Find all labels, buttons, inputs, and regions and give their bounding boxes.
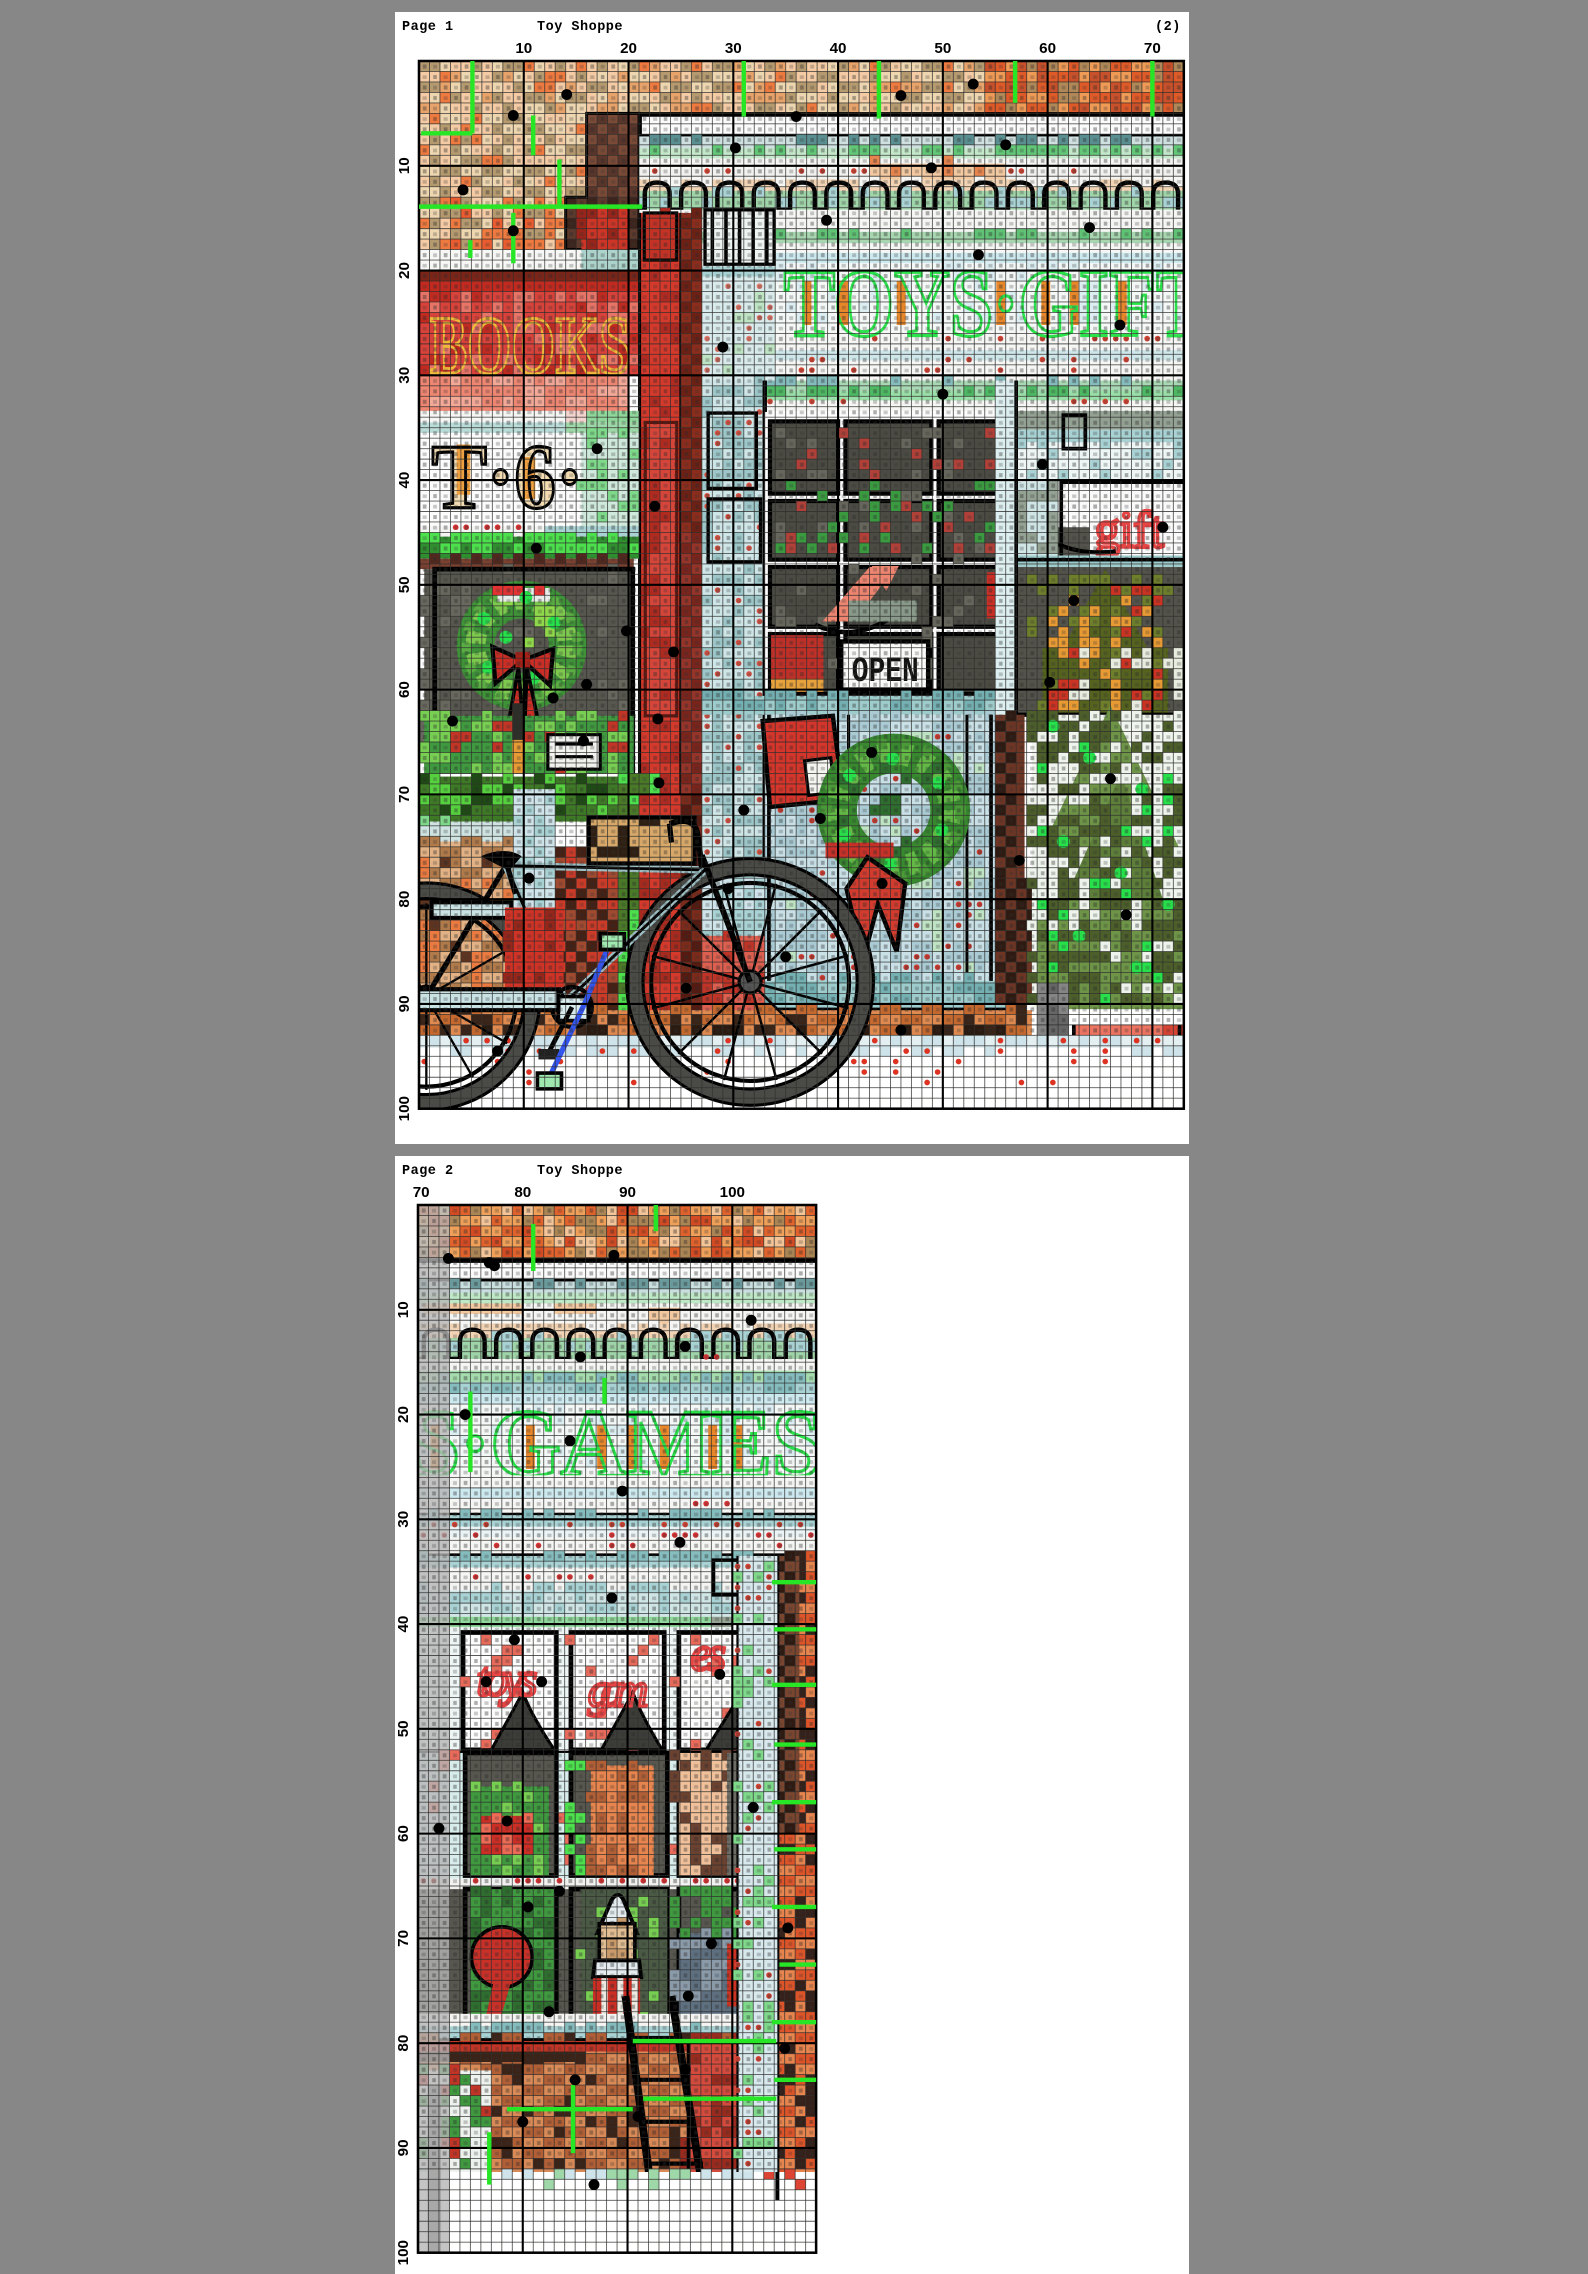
svg-text:90: 90 [396,995,413,1012]
svg-text:10: 10 [396,157,413,174]
svg-text:80: 80 [396,891,413,908]
svg-text:30: 30 [396,367,413,384]
svg-text:60: 60 [1039,40,1056,57]
svg-text:50: 50 [934,40,951,57]
svg-text:60: 60 [396,681,413,698]
svg-text:30: 30 [724,40,741,57]
svg-text:20: 20 [396,262,413,279]
svg-text:10: 10 [515,40,532,57]
svg-text:20: 20 [620,40,637,57]
svg-text:70: 70 [1144,40,1161,57]
svg-text:40: 40 [829,40,846,57]
svg-text:50: 50 [396,576,413,593]
svg-text:100: 100 [396,1096,413,1121]
svg-text:70: 70 [396,786,413,803]
svg-text:40: 40 [396,472,413,489]
